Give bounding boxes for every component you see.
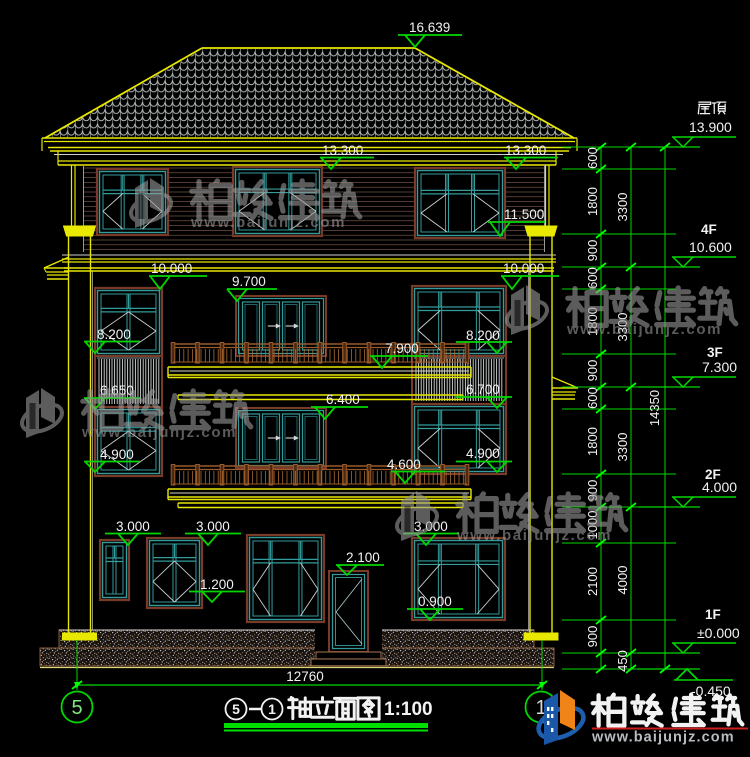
svg-text:www.baijunjz.com: www.baijunjz.com: [456, 527, 612, 544]
svg-text:5: 5: [71, 697, 82, 719]
svg-text:3F: 3F: [707, 345, 723, 360]
svg-text:www.baijunjz.com: www.baijunjz.com: [190, 214, 346, 231]
svg-text:8.200: 8.200: [97, 327, 131, 342]
svg-text:6.700: 6.700: [466, 382, 500, 397]
svg-text:13.300: 13.300: [322, 143, 363, 158]
svg-text:600: 600: [585, 147, 600, 169]
svg-text:0.900: 0.900: [418, 594, 452, 609]
svg-text:10.000: 10.000: [151, 261, 192, 276]
svg-text:8.200: 8.200: [466, 328, 500, 343]
svg-text:14350: 14350: [647, 390, 662, 426]
svg-text:900: 900: [585, 240, 600, 262]
svg-text:1800: 1800: [585, 427, 600, 456]
svg-text:www.baijunjz.com: www.baijunjz.com: [81, 424, 237, 441]
svg-text:11.500: 11.500: [504, 207, 544, 222]
svg-text:7.900: 7.900: [385, 341, 419, 356]
svg-text:3300: 3300: [615, 433, 630, 462]
svg-text:1F: 1F: [705, 607, 721, 622]
svg-text:600: 600: [585, 387, 600, 409]
svg-text:4.600: 4.600: [387, 457, 421, 472]
svg-text:16.639: 16.639: [409, 20, 450, 35]
svg-text:3300: 3300: [615, 193, 630, 222]
svg-text:900: 900: [585, 360, 600, 382]
svg-text:1: 1: [268, 701, 276, 717]
svg-text:6.400: 6.400: [326, 392, 360, 407]
svg-text:www.baijunjz.com: www.baijunjz.com: [591, 730, 735, 746]
svg-text:3.000: 3.000: [196, 519, 230, 534]
svg-text:13.900: 13.900: [689, 119, 732, 135]
svg-text:12760: 12760: [286, 669, 324, 684]
svg-text:10.600: 10.600: [689, 239, 732, 255]
svg-text:2100: 2100: [585, 567, 600, 596]
svg-text:5: 5: [232, 701, 240, 717]
svg-text:7.300: 7.300: [702, 359, 737, 375]
svg-text:9.700: 9.700: [232, 274, 266, 289]
svg-text:www.baijunjz.com: www.baijunjz.com: [566, 321, 722, 338]
svg-text:2F: 2F: [705, 467, 721, 482]
svg-text:3.000: 3.000: [116, 519, 150, 534]
svg-text:4.900: 4.900: [100, 447, 134, 462]
svg-text:2.100: 2.100: [346, 550, 380, 565]
svg-text:4F: 4F: [701, 222, 717, 237]
svg-text:1800: 1800: [585, 187, 600, 216]
svg-text:450: 450: [615, 650, 630, 672]
svg-text:±0.000: ±0.000: [697, 625, 740, 641]
svg-text:13.300: 13.300: [505, 143, 546, 158]
svg-text:4000: 4000: [615, 566, 630, 595]
svg-text:1:100: 1:100: [384, 699, 433, 720]
svg-text:10.000: 10.000: [503, 261, 544, 276]
svg-text:1.200: 1.200: [200, 577, 234, 592]
svg-text:900: 900: [585, 626, 600, 648]
svg-text:4.900: 4.900: [466, 446, 500, 461]
